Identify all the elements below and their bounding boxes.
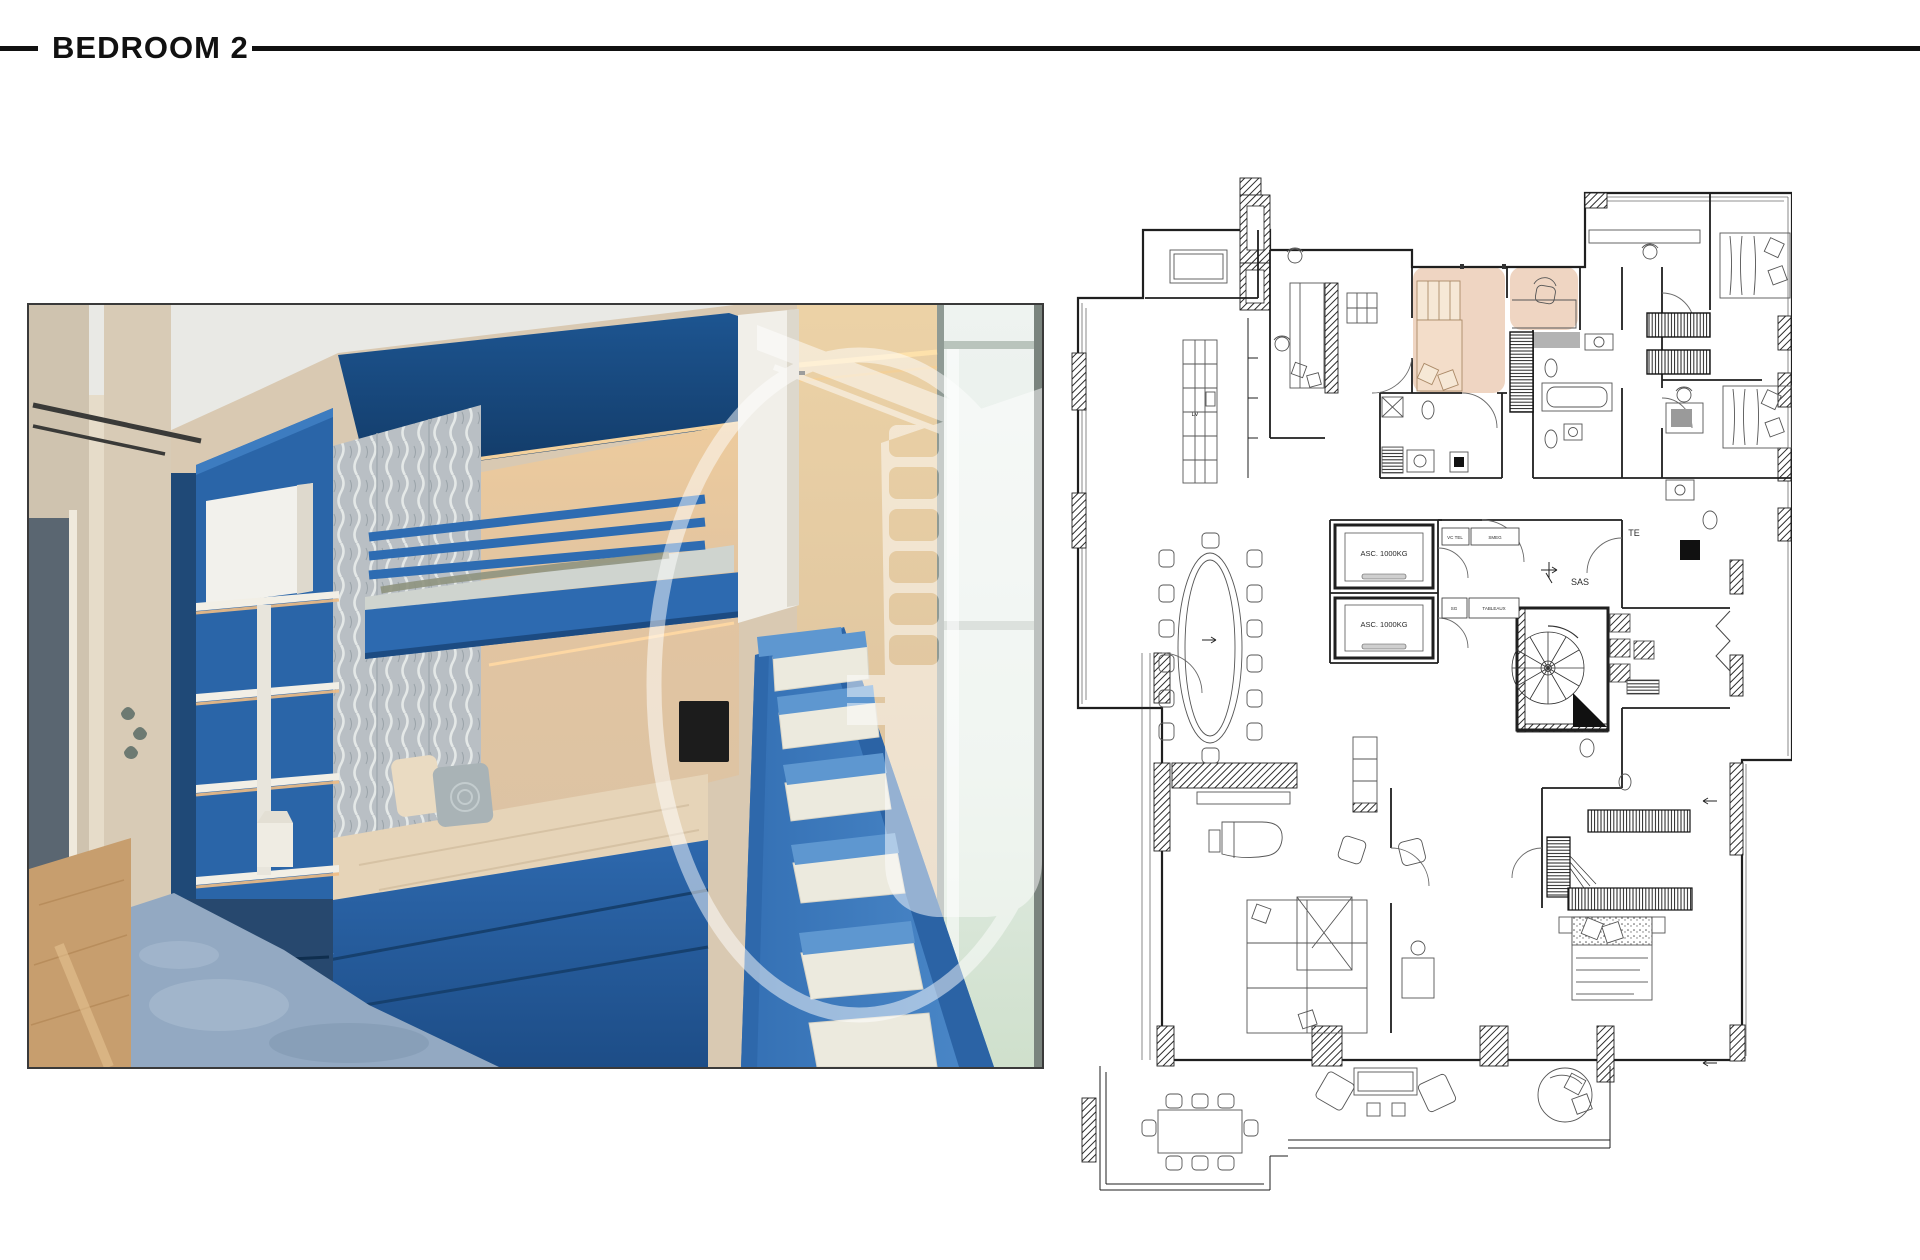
tissue-box <box>257 811 293 867</box>
wood-floor <box>29 838 131 1067</box>
page-title: BEDROOM 2 <box>52 30 249 66</box>
outdoor-table <box>1158 1110 1242 1153</box>
gray-zone <box>1533 332 1580 348</box>
bedroom-photo <box>27 303 1044 1069</box>
niche-shelves <box>1353 737 1377 803</box>
spiral-stair <box>1512 608 1608 730</box>
bedroom-bottomright <box>1547 810 1692 1000</box>
floor-plan: ASC. 1000KG ASC. 1000KG <box>1062 148 1792 1198</box>
vc-tel-label: VC TEL <box>1447 535 1463 540</box>
header: BEDROOM 2 <box>0 0 1920 90</box>
bedroom-topright <box>1589 230 1790 298</box>
te-label: TE <box>1628 528 1640 538</box>
elevator-2-label: ASC. 1000KG <box>1360 620 1407 629</box>
dining-table <box>1159 533 1262 763</box>
tableaux-label: TABLEAUX <box>1482 606 1505 611</box>
shelf-cube <box>206 483 313 605</box>
kitchen-island <box>1183 340 1217 483</box>
bedroom2-bed <box>1417 281 1462 391</box>
piano <box>1222 822 1282 858</box>
tech-boxes <box>1442 528 1519 618</box>
hall-door <box>29 518 69 869</box>
elevator-1-label: ASC. 1000KG <box>1360 549 1407 558</box>
page-root: BEDROOM 2 <box>0 0 1920 1260</box>
terrace <box>1142 1068 1592 1170</box>
living-room <box>1197 792 1434 1033</box>
utility-units <box>1610 614 1659 694</box>
tv <box>679 701 729 762</box>
dining-chairs <box>1159 533 1262 763</box>
bedroom-photo-art <box>29 305 1042 1067</box>
sas-label: SAS <box>1571 577 1589 587</box>
wardrobe <box>1647 350 1710 374</box>
wardrobe <box>1647 313 1710 337</box>
duct-inner <box>1247 206 1264 250</box>
sg-label: SG <box>1451 606 1458 611</box>
smeg-label: SMEG <box>1488 535 1502 540</box>
bedroom-midright <box>1666 386 1792 448</box>
header-rule-left <box>0 46 38 51</box>
elevator-block: ASC. 1000KG ASC. 1000KG <box>1335 525 1433 658</box>
wardrobe <box>1510 332 1533 412</box>
header-rule-right <box>252 46 1920 51</box>
folding-door <box>1716 611 1730 671</box>
